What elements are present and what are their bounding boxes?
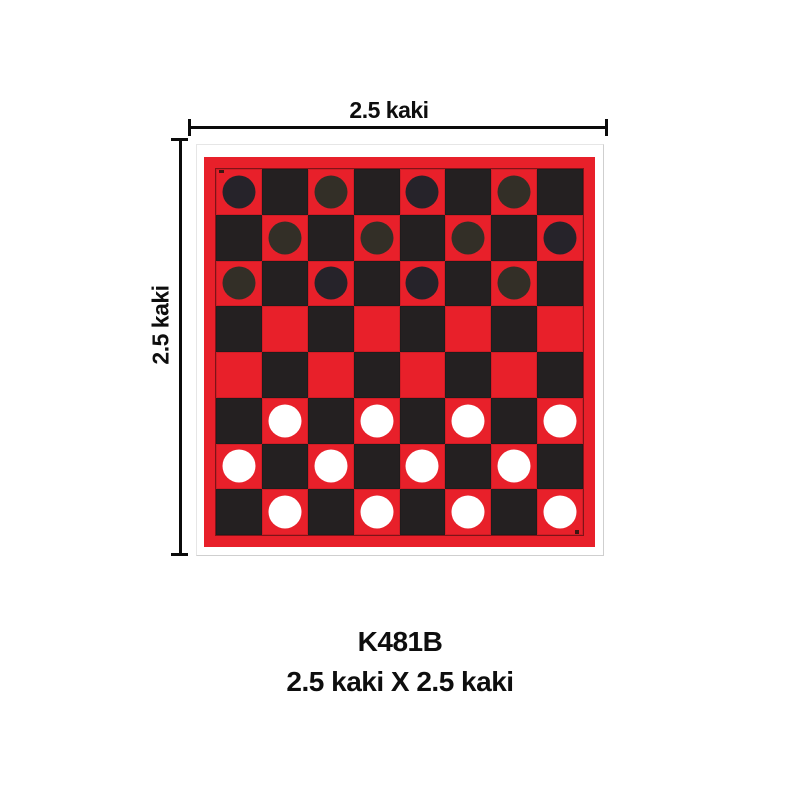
white-checker-piece: [498, 450, 531, 483]
board-cell-r4c3: [308, 306, 354, 352]
board-cell-r4c5: [400, 306, 446, 352]
product-size: 2.5 kaki X 2.5 kaki: [0, 662, 800, 702]
board-cell-r2c4: [354, 215, 400, 261]
width-dimension-line: [189, 126, 608, 129]
white-checker-piece: [544, 404, 577, 437]
board-cell-r1c8: [537, 169, 583, 215]
board-cell-r7c5: [400, 444, 446, 490]
board-grid: [215, 168, 584, 536]
white-checker-piece: [268, 404, 301, 437]
board-cell-r4c1: [216, 306, 262, 352]
board-cell-r8c5: [400, 489, 446, 535]
dark-checker-piece: [268, 221, 301, 254]
white-checker-piece: [452, 496, 485, 529]
board-cell-r8c3: [308, 489, 354, 535]
board-cell-r5c6: [445, 352, 491, 398]
board-cell-r3c4: [354, 261, 400, 307]
board-cell-r7c2: [262, 444, 308, 490]
board-cell-r6c6: [445, 398, 491, 444]
dark-checker-piece: [222, 175, 255, 208]
board-cell-r7c7: [491, 444, 537, 490]
board-cell-r4c8: [537, 306, 583, 352]
board-cell-r4c6: [445, 306, 491, 352]
caption: K481B 2.5 kaki X 2.5 kaki: [0, 622, 800, 702]
height-dimension-tick-bottom: [171, 553, 188, 556]
board-cell-r8c8: [537, 489, 583, 535]
board-cell-r3c7: [491, 261, 537, 307]
board-cell-r8c1: [216, 489, 262, 535]
board-cell-r3c5: [400, 261, 446, 307]
white-checker-piece: [452, 404, 485, 437]
white-checker-piece: [544, 496, 577, 529]
registration-mark-bottom-right: [575, 530, 579, 534]
height-dimension-line: [179, 138, 182, 556]
board-cell-r5c2: [262, 352, 308, 398]
board-cell-r8c7: [491, 489, 537, 535]
white-checker-piece: [360, 404, 393, 437]
board-cell-r2c3: [308, 215, 354, 261]
dark-checker-piece: [498, 267, 531, 300]
board-cell-r2c6: [445, 215, 491, 261]
board-cell-r2c1: [216, 215, 262, 261]
board-cell-r8c2: [262, 489, 308, 535]
board-cell-r3c8: [537, 261, 583, 307]
dark-checker-piece: [314, 267, 347, 300]
white-checker-piece: [406, 450, 439, 483]
board-cell-r2c2: [262, 215, 308, 261]
board-cell-r6c8: [537, 398, 583, 444]
registration-mark-top-left: [219, 170, 224, 173]
product-diagram-canvas: 2.5 kaki 2.5 kaki K481B 2.5 kaki X 2.5 k…: [0, 0, 800, 800]
width-dimension-tick-left: [188, 119, 191, 136]
board-cell-r4c2: [262, 306, 308, 352]
board-cell-r6c7: [491, 398, 537, 444]
white-checker-piece: [268, 496, 301, 529]
height-dimension-label: 2.5 kaki: [148, 285, 175, 364]
board-cell-r7c8: [537, 444, 583, 490]
product-code: K481B: [0, 622, 800, 662]
board-cell-r8c4: [354, 489, 400, 535]
board-cell-r5c5: [400, 352, 446, 398]
board-cell-r6c2: [262, 398, 308, 444]
dark-checker-piece: [314, 175, 347, 208]
white-checker-piece: [360, 496, 393, 529]
board-cell-r3c3: [308, 261, 354, 307]
board-cell-r5c7: [491, 352, 537, 398]
board-cell-r1c4: [354, 169, 400, 215]
dark-checker-piece: [222, 267, 255, 300]
board-cell-r7c3: [308, 444, 354, 490]
board-cell-r5c4: [354, 352, 400, 398]
board-cell-r8c6: [445, 489, 491, 535]
dark-checker-piece: [406, 267, 439, 300]
width-dimension-tick-right: [605, 119, 608, 136]
board-cell-r7c4: [354, 444, 400, 490]
board-cell-r6c5: [400, 398, 446, 444]
board-cell-r4c4: [354, 306, 400, 352]
board-cell-r5c8: [537, 352, 583, 398]
white-checker-piece: [222, 450, 255, 483]
board-cell-r1c3: [308, 169, 354, 215]
board-cell-r7c1: [216, 444, 262, 490]
board-cell-r1c1: [216, 169, 262, 215]
board-cell-r3c1: [216, 261, 262, 307]
board-cell-r6c1: [216, 398, 262, 444]
board-cell-r2c5: [400, 215, 446, 261]
board-cell-r2c8: [537, 215, 583, 261]
board-cell-r6c4: [354, 398, 400, 444]
board-cell-r6c3: [308, 398, 354, 444]
board-cell-r4c7: [491, 306, 537, 352]
board-cell-r1c7: [491, 169, 537, 215]
dark-checker-piece: [544, 221, 577, 254]
dark-checker-piece: [498, 175, 531, 208]
dark-checker-piece: [360, 221, 393, 254]
board-cell-r1c2: [262, 169, 308, 215]
board-cell-r7c6: [445, 444, 491, 490]
dark-checker-piece: [406, 175, 439, 208]
board-cell-r3c2: [262, 261, 308, 307]
board-cell-r5c1: [216, 352, 262, 398]
white-checker-piece: [314, 450, 347, 483]
board-cell-r3c6: [445, 261, 491, 307]
board-cell-r1c6: [445, 169, 491, 215]
board-cell-r5c3: [308, 352, 354, 398]
board-cell-r1c5: [400, 169, 446, 215]
checkers-board: [204, 157, 595, 547]
height-dimension-tick-top: [171, 138, 188, 141]
width-dimension-label: 2.5 kaki: [189, 97, 589, 124]
dark-checker-piece: [452, 221, 485, 254]
board-cell-r2c7: [491, 215, 537, 261]
